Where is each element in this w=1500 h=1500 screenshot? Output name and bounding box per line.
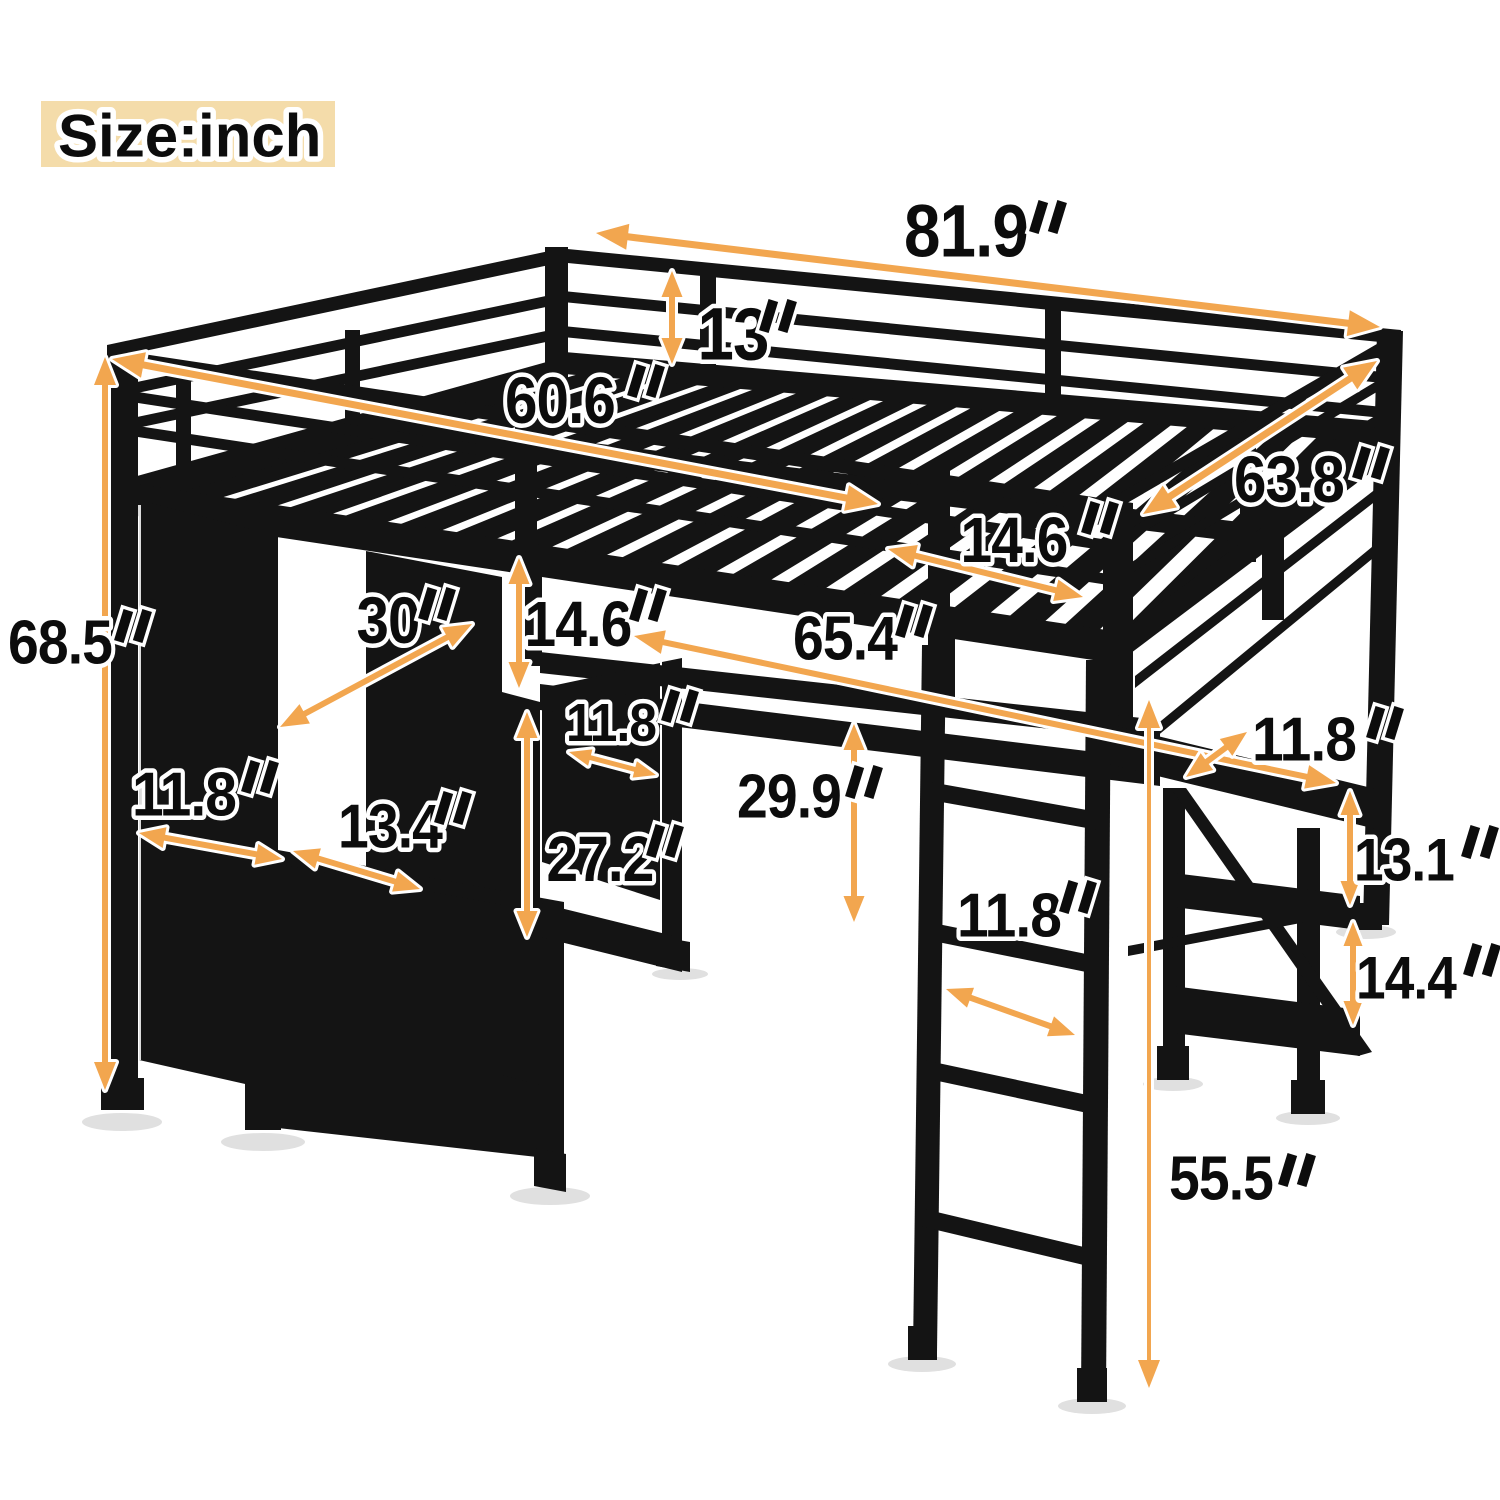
svg-text:13: 13 xyxy=(698,293,769,376)
svg-text:29.9: 29.9 xyxy=(737,763,841,832)
svg-text:68.5: 68.5 xyxy=(8,609,112,678)
svg-text:65.4: 65.4 xyxy=(793,605,898,674)
svg-text:27.2: 27.2 xyxy=(547,823,654,895)
svg-text:11.8: 11.8 xyxy=(132,761,236,830)
svg-text:14.4: 14.4 xyxy=(1356,945,1457,1012)
svg-text:11.8: 11.8 xyxy=(1252,706,1356,775)
svg-text:14.6: 14.6 xyxy=(961,504,1068,576)
svg-text:60.6: 60.6 xyxy=(505,363,615,437)
svg-text:13.4: 13.4 xyxy=(338,793,443,862)
svg-text:30: 30 xyxy=(357,583,420,657)
svg-text:Size:inch: Size:inch xyxy=(58,103,321,170)
svg-text:11.8: 11.8 xyxy=(566,693,656,753)
svg-text:55.5: 55.5 xyxy=(1169,1145,1273,1214)
svg-text:14.6: 14.6 xyxy=(525,588,632,660)
svg-text:13.1: 13.1 xyxy=(1354,827,1454,894)
svg-text:63.8: 63.8 xyxy=(1234,442,1344,516)
svg-text:11.8: 11.8 xyxy=(957,882,1061,951)
svg-text:81.9: 81.9 xyxy=(904,190,1028,273)
